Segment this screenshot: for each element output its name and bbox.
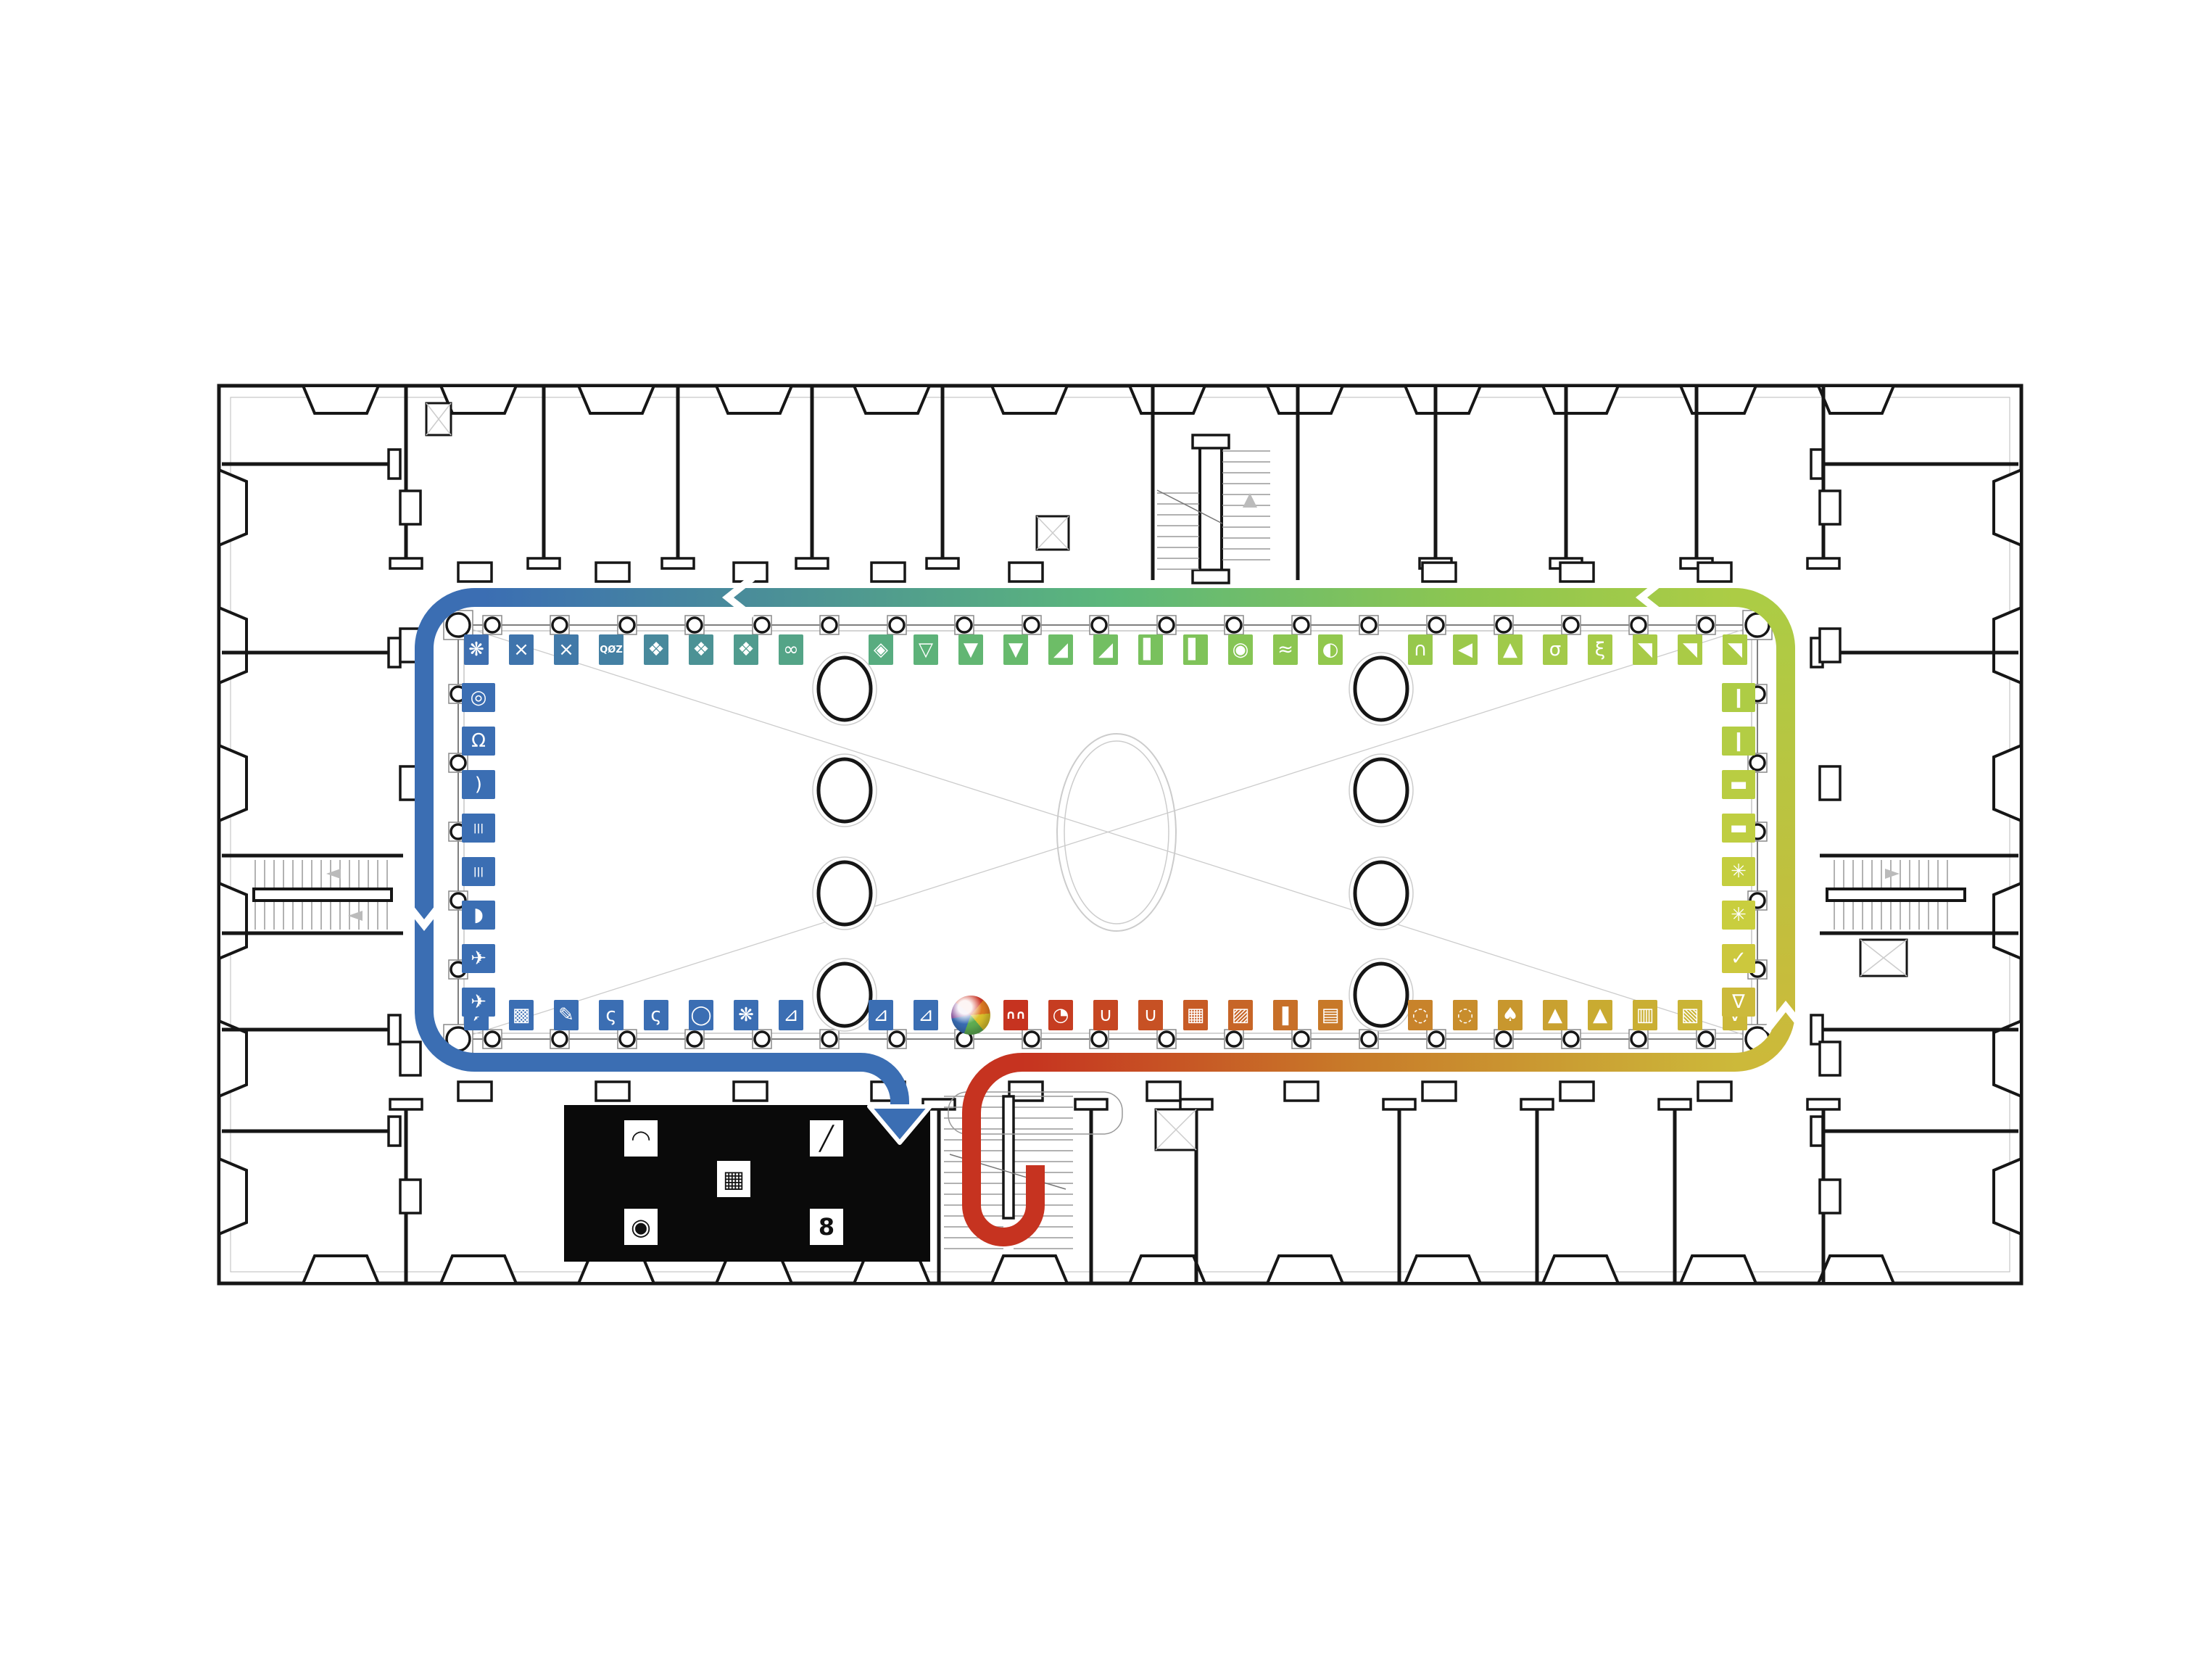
spiral-icon: ◉ <box>631 1213 651 1241</box>
hat-icon: ◠ <box>632 1125 650 1152</box>
plan-linework: ◠╱▦◉8 <box>0 0 2212 1659</box>
floor-plan-diagram: ◠╱▦◉8 ❋××QØZ❖❖❖∞◈▽▼▼◢◢▌▌◉≈◐∩◀▲σξ◥◥◥✈▩✎ςς… <box>0 0 2212 1659</box>
figure-eight-icon: 8 <box>819 1213 834 1241</box>
courtyard-colonnade <box>444 611 1772 1054</box>
mosaic-icon: ▦ <box>723 1165 745 1193</box>
brush-icon: ╱ <box>818 1125 834 1152</box>
black-box-room: ◠╱▦◉8 <box>564 1105 930 1262</box>
